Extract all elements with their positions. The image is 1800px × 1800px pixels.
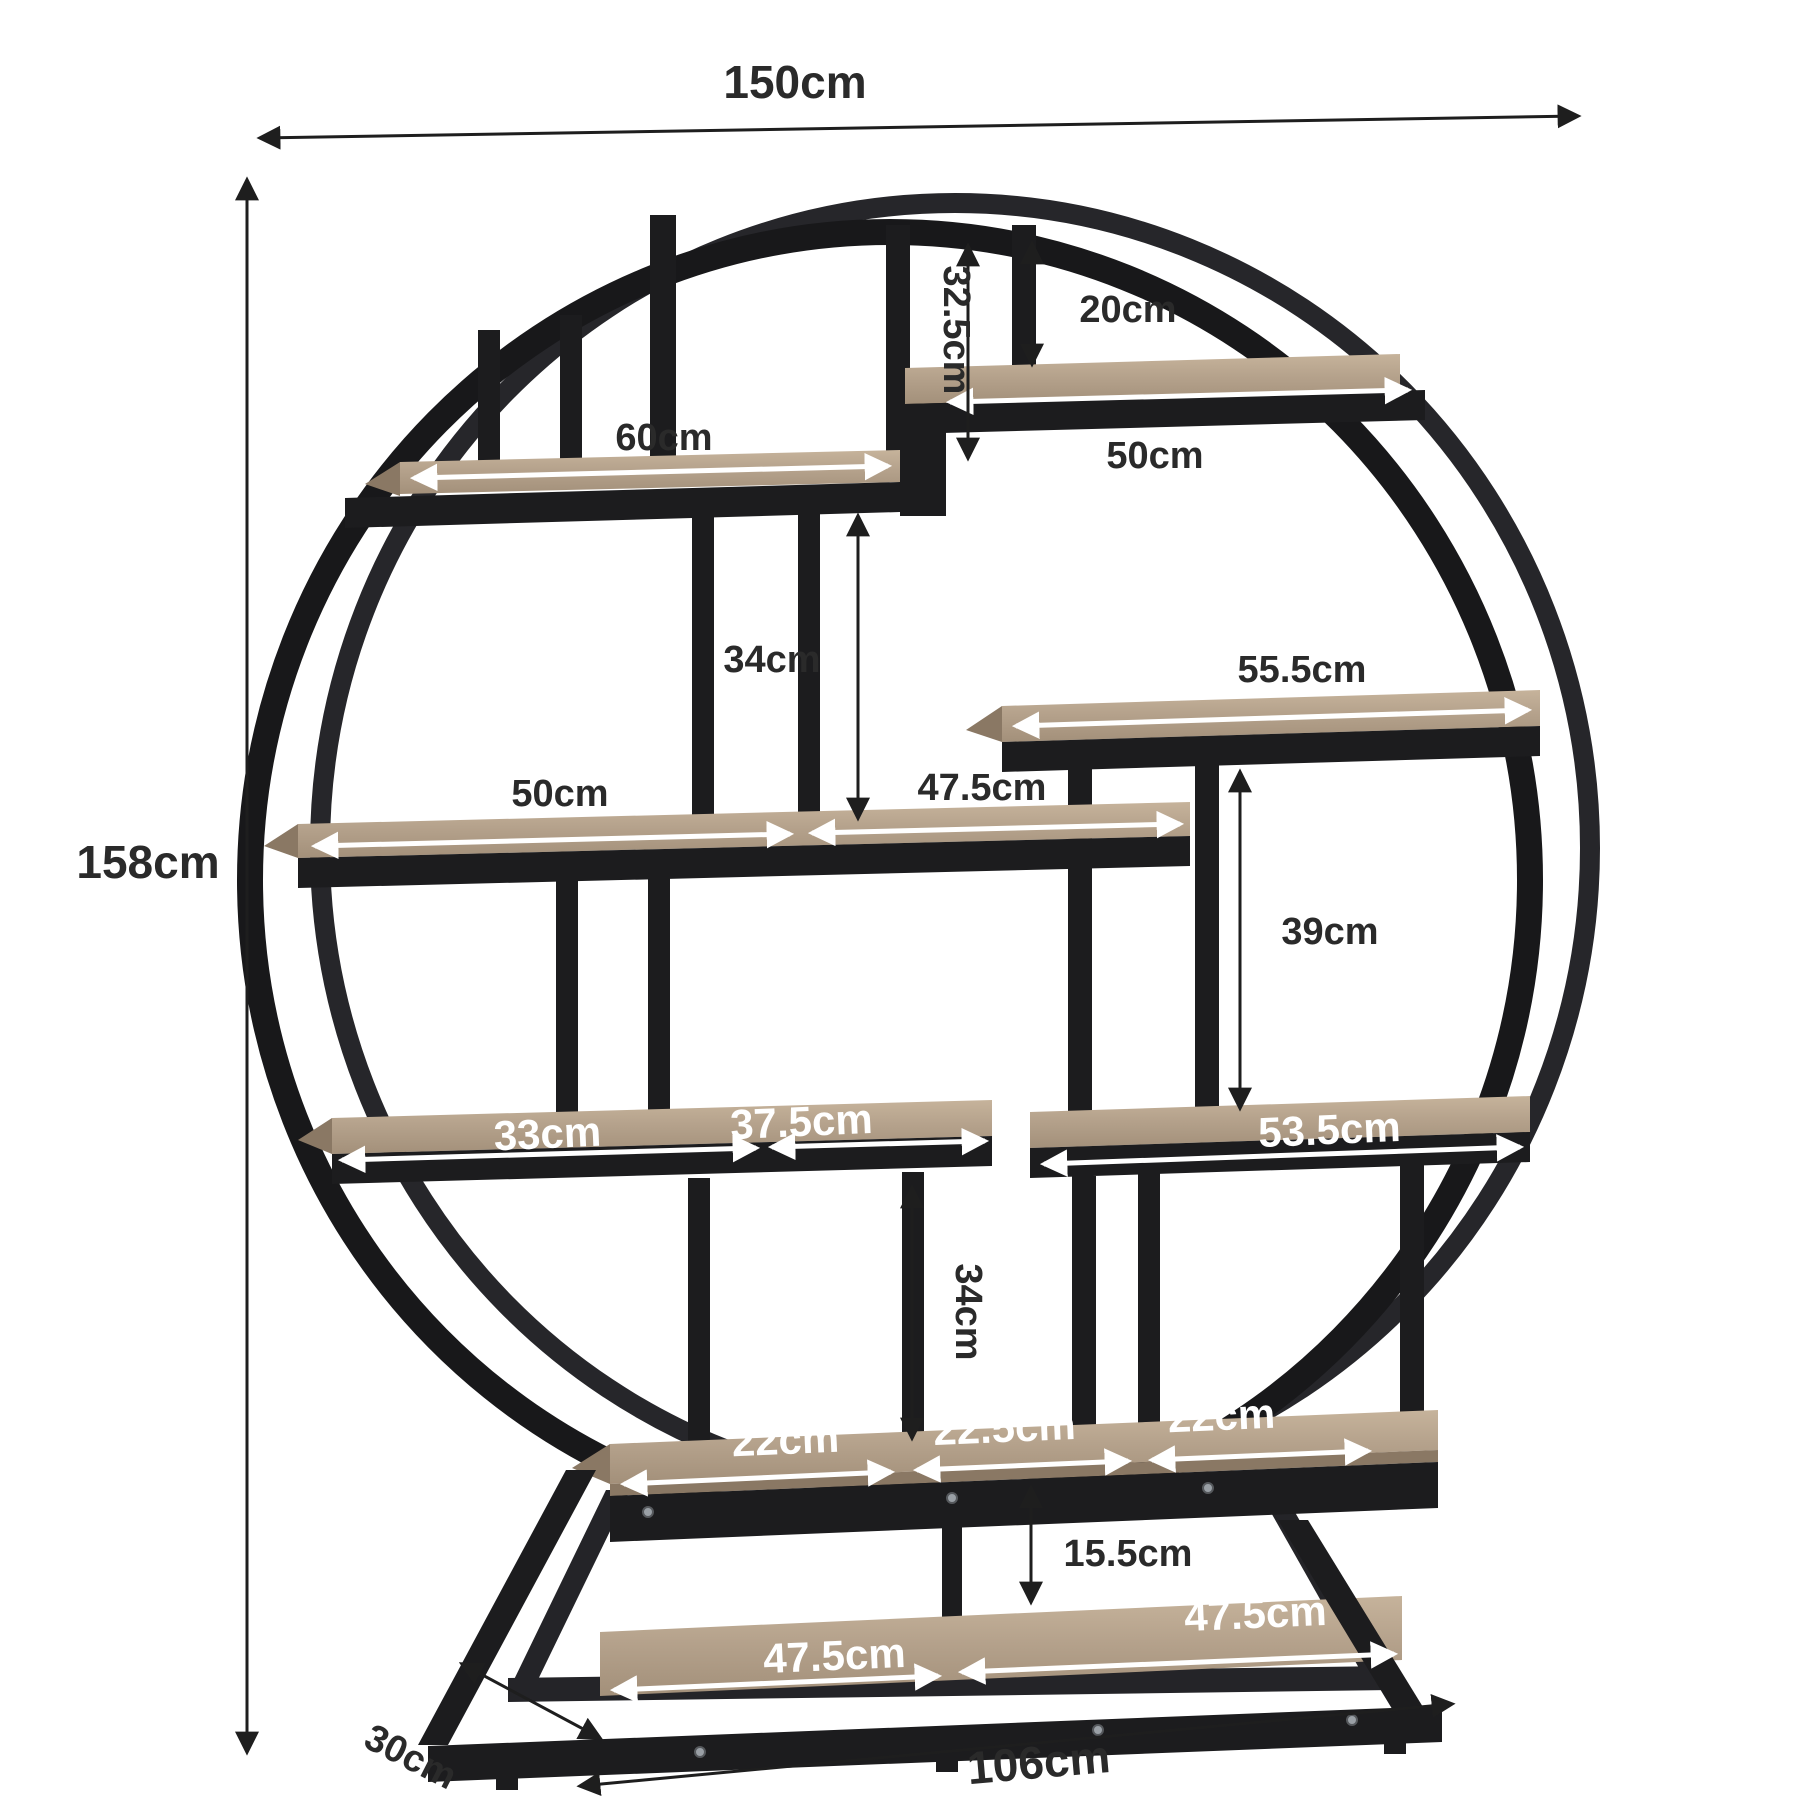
dim-right-gap-label: 39cm: [1281, 911, 1378, 953]
dim-top-right-shelf-label: 50cm: [1106, 435, 1203, 477]
dim-lower-left-shelf-right-label: 37.5cm: [729, 1095, 873, 1148]
dim-upper-left-shelf-label: 60cm: [615, 417, 712, 459]
dim-base-shelf-left-label: 47.5cm: [762, 1629, 906, 1682]
dim-right-shelf-label: 55.5cm: [1238, 649, 1367, 691]
dim-overall-height-label: 158cm: [76, 836, 219, 888]
dim-top-clearance-label: 20cm: [1079, 289, 1176, 331]
dim-mid-shelf-right-label: 47.5cm: [918, 767, 1047, 809]
dim-base-width-label: 106cm: [965, 1730, 1112, 1794]
dim-base-gap-label: 15.5cm: [1064, 1533, 1193, 1575]
dim-mid-shelf-left-label: 50cm: [511, 773, 608, 815]
dim-bottom-mid-label: 22.5cm: [932, 1401, 1076, 1454]
dim-lower-right-shelf-label: 53.5cm: [1257, 1103, 1401, 1156]
dim-bottom-right-label: 22cm: [1167, 1390, 1276, 1442]
shelf-right-55: [966, 690, 1540, 772]
dim-lower-left-shelf-left-label: 33cm: [493, 1108, 602, 1160]
dim-base-shelf-right-label: 47.5cm: [1183, 1587, 1327, 1640]
dim-lower-mid-gap-label: 34cm: [947, 1263, 989, 1360]
dim-top-gap-label: 32.5cm: [935, 266, 977, 395]
dim-bottom-left-label: 22cm: [731, 1414, 840, 1466]
dim-overall-width-label: 150cm: [723, 56, 866, 108]
diagram-canvas: 150cm 158cm 32.5cm 20cm 60cm 50cm 34cm 5…: [0, 0, 1800, 1800]
dimension-diagram: 150cm 158cm 32.5cm 20cm 60cm 50cm 34cm 5…: [0, 0, 1800, 1800]
dim-upper-mid-gap-label: 34cm: [723, 639, 820, 681]
